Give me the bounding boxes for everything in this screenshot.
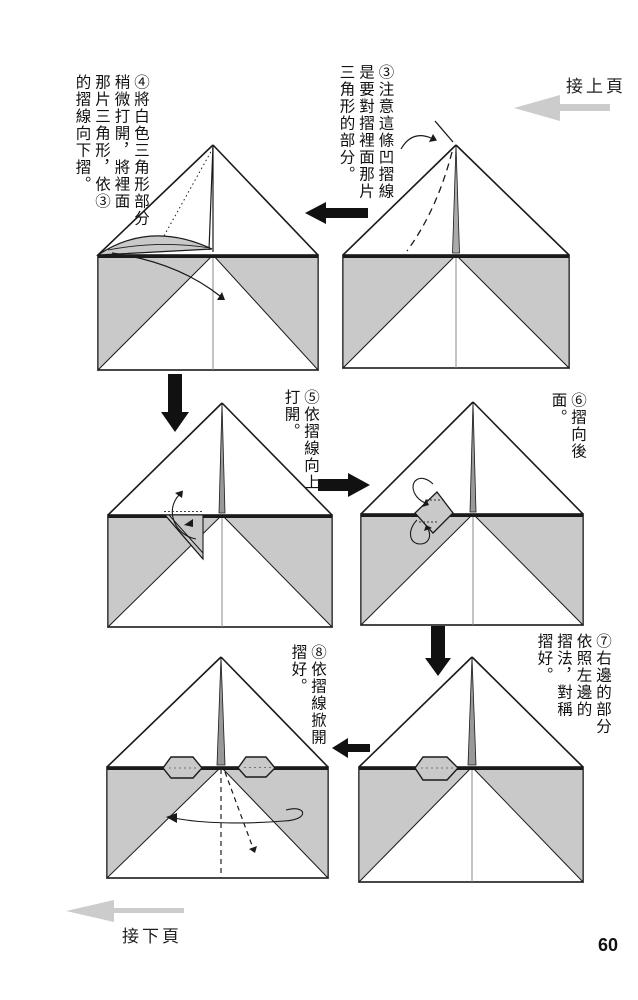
page-number: 60: [598, 935, 618, 956]
hexagon-flap-right: [238, 757, 275, 777]
fold-direction-arrow: [401, 136, 431, 149]
apex-sliver: [217, 657, 225, 765]
continued-next-label: 接下頁: [122, 922, 182, 947]
flow-arrow-left-icon: [330, 736, 372, 760]
diagram-step8-figure: [100, 652, 334, 884]
apex-sliver: [209, 145, 213, 252]
roof-outline: [98, 145, 318, 255]
crease-tick-line: [435, 121, 453, 142]
diagram-step7-figure: [353, 652, 587, 886]
hexagon-flap-left: [163, 757, 202, 778]
apex-sliver: [470, 402, 476, 512]
diagram-step5-figure: [104, 398, 336, 632]
apex-sliver: [219, 403, 225, 513]
origami-instruction-page: 接上頁 ④將白色三角形部分 稍微打開，將裡面 那片三角形，依③ 的摺線向下摺。 …: [0, 0, 638, 1000]
diagram-step6-figure: [353, 398, 587, 629]
flow-arrow-left-icon: [302, 200, 370, 226]
valley-fold-dashed-line: [407, 152, 452, 251]
diagram-step4-figure: [92, 140, 324, 376]
diagram-step3-figure: [338, 110, 574, 372]
apex-sliver: [453, 145, 460, 253]
apex-sliver: [468, 657, 476, 765]
lift-arrowhead-icon: [175, 491, 183, 499]
